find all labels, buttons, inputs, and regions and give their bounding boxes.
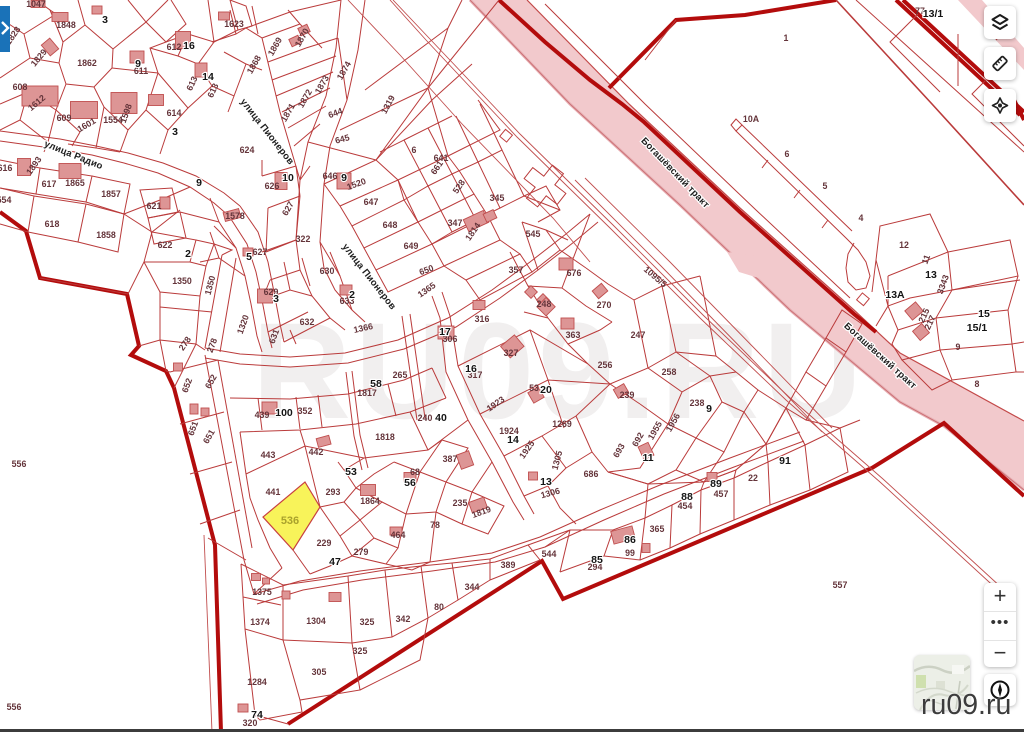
svg-text:1865: 1865 [65,178,85,188]
svg-text:344: 344 [465,582,480,592]
svg-text:10: 10 [282,172,294,184]
svg-text:649: 649 [404,241,419,251]
svg-text:365: 365 [650,524,665,534]
svg-text:53: 53 [529,383,539,393]
svg-text:9: 9 [706,403,712,415]
svg-text:536: 536 [281,515,299,527]
svg-text:1862: 1862 [77,58,97,68]
svg-text:626: 626 [265,181,280,191]
svg-text:325: 325 [360,617,375,627]
svg-text:248: 248 [537,299,552,309]
svg-text:5: 5 [246,251,252,263]
svg-text:100: 100 [275,407,293,419]
svg-text:342: 342 [396,614,411,624]
svg-text:621: 621 [147,201,162,211]
svg-text:1047: 1047 [26,0,46,9]
svg-text:345: 345 [490,193,505,203]
svg-text:327: 327 [504,348,519,358]
svg-text:15/1: 15/1 [967,322,988,334]
svg-text:10A: 10A [743,114,760,124]
svg-text:322: 322 [296,234,311,244]
svg-text:556: 556 [7,702,22,712]
svg-text:239: 239 [620,390,635,400]
svg-text:16: 16 [183,40,195,52]
svg-text:305: 305 [312,667,327,677]
svg-text:352: 352 [298,406,313,416]
svg-text:279: 279 [354,547,369,557]
svg-text:556: 556 [12,459,27,469]
svg-text:47: 47 [329,556,341,568]
svg-text:1623: 1623 [224,19,244,29]
svg-text:14: 14 [202,71,214,83]
svg-text:439: 439 [255,410,270,420]
svg-text:235: 235 [453,498,468,508]
svg-text:85: 85 [591,554,603,566]
svg-text:1304: 1304 [306,616,326,626]
svg-text:1: 1 [784,33,789,43]
svg-text:3: 3 [102,14,108,26]
svg-text:8: 8 [975,379,980,389]
svg-text:11: 11 [642,452,653,464]
svg-text:17: 17 [439,326,451,338]
svg-text:265: 265 [393,370,408,380]
svg-text:617: 617 [42,179,57,189]
svg-text:441: 441 [266,487,281,497]
svg-text:612: 612 [167,42,182,52]
svg-text:13A: 13A [885,289,905,301]
svg-text:86: 86 [624,534,636,546]
svg-text:464: 464 [391,530,406,540]
svg-text:1284: 1284 [247,677,267,687]
svg-text:1375: 1375 [252,587,272,597]
svg-text:622: 622 [158,240,173,250]
svg-text:627: 627 [253,247,268,257]
svg-text:387: 387 [443,454,458,464]
svg-text:646: 646 [323,171,338,181]
svg-text:258: 258 [662,367,677,377]
svg-text:557: 557 [833,580,848,590]
svg-text:443: 443 [261,450,276,460]
svg-text:270: 270 [597,300,612,310]
svg-text:9: 9 [956,342,961,352]
svg-text:6: 6 [412,145,417,155]
svg-text:1578: 1578 [225,211,245,221]
svg-text:1818: 1818 [375,432,395,442]
svg-text:608: 608 [13,82,28,92]
svg-text:442: 442 [309,447,324,457]
svg-text:68: 68 [410,467,420,477]
svg-text:58: 58 [370,378,382,390]
svg-text:325: 325 [353,646,368,656]
svg-text:22: 22 [748,473,758,483]
svg-text:229: 229 [317,538,332,548]
svg-text:20: 20 [540,384,552,396]
svg-text:12: 12 [899,240,909,250]
svg-text:13/1: 13/1 [923,8,944,20]
svg-text:1858: 1858 [96,230,116,240]
svg-text:1864: 1864 [360,496,380,506]
svg-text:647: 647 [364,197,379,207]
svg-text:1848: 1848 [56,20,76,30]
svg-text:14: 14 [507,434,519,446]
svg-text:544: 544 [542,549,557,559]
svg-text:614: 614 [167,108,182,118]
svg-text:632: 632 [300,317,315,327]
svg-text:88: 88 [681,491,693,503]
svg-text:2: 2 [349,289,355,301]
svg-text:2: 2 [185,248,191,260]
svg-text:648: 648 [383,220,398,230]
svg-text:363: 363 [566,330,581,340]
svg-text:9: 9 [196,177,202,189]
svg-text:554: 554 [0,195,11,205]
svg-text:1857: 1857 [101,189,121,199]
svg-text:4: 4 [859,213,864,223]
svg-text:80: 80 [434,602,444,612]
svg-text:240: 240 [418,413,433,423]
svg-text:1350: 1350 [172,276,192,286]
svg-text:15: 15 [978,308,990,320]
svg-text:247: 247 [631,330,646,340]
svg-text:686: 686 [584,469,599,479]
svg-text:616: 616 [0,163,12,173]
svg-text:74: 74 [251,709,263,721]
svg-text:3: 3 [273,293,279,305]
svg-text:630: 630 [320,266,335,276]
svg-text:13: 13 [925,269,937,281]
svg-text:347: 347 [448,218,463,228]
svg-text:389: 389 [501,560,516,570]
svg-text:40: 40 [435,412,447,424]
svg-text:545: 545 [526,229,541,239]
svg-text:16: 16 [465,363,477,375]
svg-text:238: 238 [690,398,705,408]
svg-text:89: 89 [710,478,722,490]
svg-text:357: 357 [509,265,524,275]
svg-text:609: 609 [57,113,72,123]
svg-text:293: 293 [326,487,341,497]
svg-text:676: 676 [567,268,582,278]
svg-text:13: 13 [540,476,552,488]
svg-text:91: 91 [779,455,791,467]
svg-text:6: 6 [785,149,790,159]
svg-text:78: 78 [430,520,440,530]
svg-text:256: 256 [598,360,613,370]
svg-text:1269: 1269 [552,419,572,429]
svg-text:316: 316 [475,314,490,324]
svg-text:3: 3 [172,126,178,138]
svg-text:9: 9 [341,172,347,184]
svg-text:53: 53 [345,466,357,478]
svg-text:457: 457 [714,489,729,499]
svg-text:5: 5 [823,181,828,191]
svg-text:624: 624 [240,145,255,155]
svg-text:9: 9 [135,58,141,70]
svg-text:1374: 1374 [250,617,270,627]
svg-text:56: 56 [404,477,416,489]
svg-text:618: 618 [45,219,60,229]
svg-text:99: 99 [625,548,635,558]
